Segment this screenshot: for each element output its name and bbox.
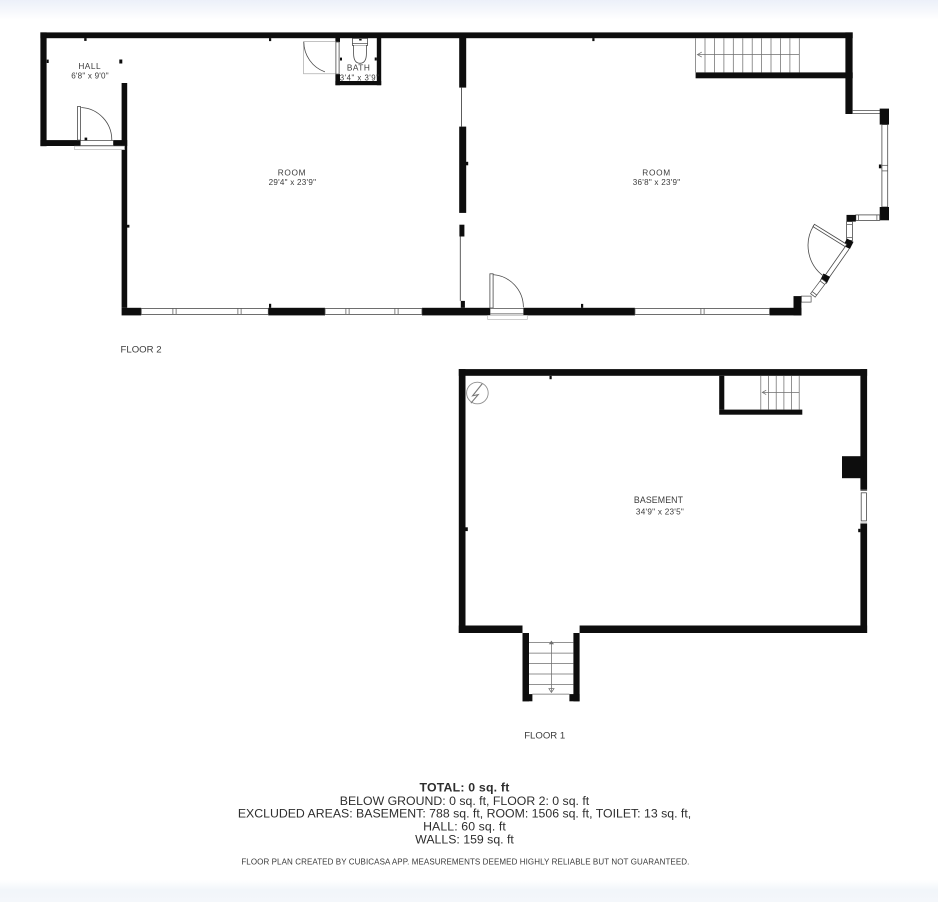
svg-text:FLOOR 1: FLOOR 1 bbox=[524, 730, 565, 741]
svg-text:29'4" x 23'9": 29'4" x 23'9" bbox=[269, 178, 317, 187]
svg-text:6'8" x 9'0": 6'8" x 9'0" bbox=[71, 72, 109, 81]
svg-text:34'9" x 23'5": 34'9" x 23'5" bbox=[636, 507, 684, 516]
svg-text:TOTAL: 0 sq. ft: TOTAL: 0 sq. ft bbox=[420, 781, 510, 795]
svg-text:ROOM: ROOM bbox=[642, 168, 671, 178]
svg-text:BATH: BATH bbox=[347, 62, 371, 72]
svg-text:FLOOR PLAN CREATED BY CUBICASA: FLOOR PLAN CREATED BY CUBICASA APP. MEAS… bbox=[241, 858, 689, 867]
svg-text:HALL: 60 sq. ft: HALL: 60 sq. ft bbox=[423, 819, 506, 833]
svg-text:FLOOR 2: FLOOR 2 bbox=[121, 344, 162, 355]
svg-text:ROOM: ROOM bbox=[278, 168, 307, 178]
svg-text:BELOW GROUND: 0 sq. ft, FLOOR: BELOW GROUND: 0 sq. ft, FLOOR 2: 0 sq. f… bbox=[340, 794, 590, 808]
svg-text:WALLS: 159 sq. ft: WALLS: 159 sq. ft bbox=[415, 833, 514, 847]
svg-text:BASEMENT: BASEMENT bbox=[634, 495, 684, 505]
svg-text:3'4" x 3'9": 3'4" x 3'9" bbox=[340, 73, 380, 82]
svg-text:HALL: HALL bbox=[78, 61, 101, 71]
svg-text:36'8" x 23'9": 36'8" x 23'9" bbox=[633, 178, 681, 187]
